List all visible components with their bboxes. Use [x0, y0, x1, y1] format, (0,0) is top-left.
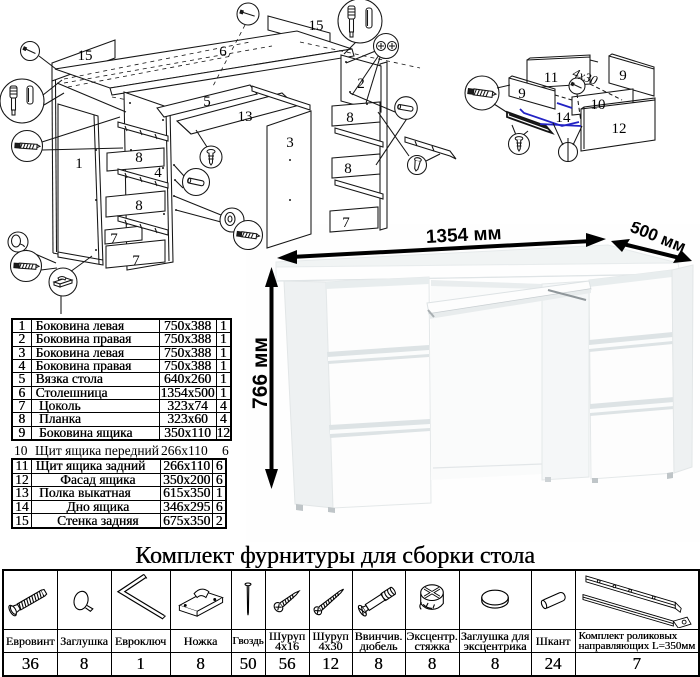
svg-text:9: 9 [518, 86, 526, 102]
svg-text:1: 1 [75, 156, 83, 172]
svg-text:8: 8 [135, 150, 143, 166]
svg-text:9: 9 [619, 68, 627, 84]
svg-text:12: 12 [612, 121, 627, 137]
svg-text:3: 3 [286, 135, 294, 151]
svg-text:766 мм: 766 мм [249, 337, 272, 409]
svg-text:5: 5 [203, 94, 211, 110]
svg-text:7: 7 [342, 215, 350, 231]
svg-text:8: 8 [344, 161, 352, 177]
svg-text:15: 15 [309, 18, 324, 34]
svg-text:14: 14 [556, 110, 572, 126]
svg-text:7: 7 [110, 231, 118, 247]
svg-text:8: 8 [135, 198, 143, 214]
svg-text:10: 10 [591, 97, 606, 113]
svg-text:6: 6 [219, 44, 227, 60]
svg-text:13: 13 [238, 109, 253, 125]
svg-text:2: 2 [357, 76, 365, 92]
svg-text:8: 8 [346, 110, 354, 126]
svg-text:11: 11 [544, 70, 558, 86]
svg-text:4: 4 [154, 165, 162, 181]
svg-text:15: 15 [78, 48, 93, 64]
svg-text:7: 7 [132, 253, 140, 269]
